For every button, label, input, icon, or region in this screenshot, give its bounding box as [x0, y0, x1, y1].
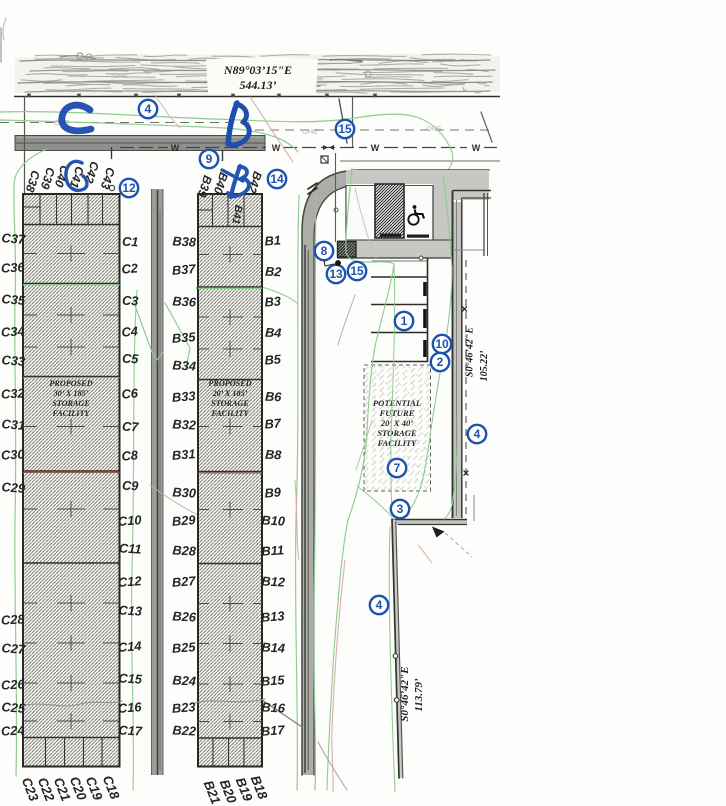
svg-text:C25: C25 [1, 699, 26, 716]
svg-text:C30: C30 [1, 446, 25, 462]
svg-text:C34: C34 [1, 323, 25, 339]
svg-text:POTENTIAL: POTENTIAL [373, 398, 421, 408]
svg-text:14: 14 [270, 172, 284, 186]
svg-text:C17: C17 [118, 722, 143, 738]
svg-text:B34: B34 [172, 357, 196, 373]
svg-text:C2: C2 [121, 260, 138, 276]
svg-text:13: 13 [329, 267, 343, 281]
svg-text:B33: B33 [171, 388, 195, 405]
svg-text:B2: B2 [265, 264, 282, 280]
svg-text:B26: B26 [172, 608, 197, 624]
svg-text:C26: C26 [1, 676, 26, 692]
svg-text:PROPOSED: PROPOSED [49, 379, 92, 388]
svg-text:C1: C1 [122, 234, 139, 250]
svg-text:C7: C7 [122, 419, 140, 435]
svg-text:C37: C37 [1, 230, 26, 247]
svg-text:C29: C29 [1, 479, 26, 496]
svg-text:PROPOSED: PROPOSED [208, 379, 251, 388]
svg-text:OHE: OHE [302, 129, 318, 136]
svg-text:20’ X 185’: 20’ X 185’ [212, 389, 248, 398]
svg-text:C36: C36 [1, 259, 26, 275]
svg-text:4: 4 [376, 598, 383, 612]
svg-text:FUTURE: FUTURE [379, 408, 415, 418]
svg-text:B24: B24 [172, 672, 196, 688]
svg-text:B37: B37 [171, 261, 196, 278]
svg-text:W: W [171, 143, 180, 153]
svg-text:C10: C10 [117, 512, 141, 529]
svg-text:B12: B12 [261, 573, 285, 589]
svg-text:S0°46’42"E: S0°46’42"E [399, 666, 411, 721]
svg-text:FACILITY: FACILITY [210, 409, 249, 418]
svg-text:B31: B31 [171, 446, 195, 463]
svg-text:C15: C15 [118, 670, 143, 686]
svg-text:×: × [461, 304, 468, 316]
svg-text:B27: B27 [171, 573, 196, 590]
svg-text:B8: B8 [265, 447, 283, 463]
svg-text:7: 7 [394, 461, 401, 475]
svg-text:30’ X 185’: 30’ X 185’ [53, 389, 89, 398]
svg-text:STORAGE: STORAGE [52, 399, 90, 408]
svg-text:FACILITY: FACILITY [51, 409, 90, 418]
svg-text:B30: B30 [172, 484, 196, 500]
svg-text:20’ X 40’: 20’ X 40’ [380, 418, 413, 428]
svg-text:C9: C9 [122, 478, 140, 494]
svg-text:12: 12 [122, 181, 136, 195]
svg-text:544.13’: 544.13’ [240, 78, 277, 92]
svg-text:B17: B17 [260, 722, 285, 739]
svg-text:B38: B38 [172, 233, 197, 249]
svg-text:1: 1 [401, 314, 408, 328]
svg-text:B3: B3 [264, 293, 281, 309]
svg-text:B1: B1 [264, 232, 281, 248]
svg-text:C31: C31 [1, 416, 25, 433]
svg-text:C32: C32 [1, 385, 25, 401]
svg-text:15: 15 [350, 264, 364, 278]
svg-text:B13: B13 [260, 608, 284, 625]
svg-text:OHE: OHE [112, 73, 128, 80]
svg-text:8: 8 [321, 244, 328, 258]
svg-text:B35: B35 [171, 329, 196, 346]
svg-text:B36: B36 [172, 293, 197, 309]
svg-text:B14: B14 [261, 639, 285, 655]
svg-text:C5: C5 [122, 351, 140, 367]
svg-text:C16: C16 [117, 699, 142, 716]
svg-text:15: 15 [338, 122, 352, 136]
svg-text:FACILITY: FACILITY [377, 438, 418, 448]
svg-text:C24: C24 [1, 722, 25, 738]
svg-text:B29: B29 [171, 512, 196, 529]
svg-text:B10: B10 [261, 512, 285, 528]
svg-text:W: W [371, 143, 380, 153]
svg-text:C3: C3 [122, 293, 139, 309]
svg-text:B25: B25 [171, 639, 196, 656]
svg-text:B15: B15 [260, 672, 285, 689]
svg-text:9: 9 [206, 152, 213, 166]
svg-text:STORAGE: STORAGE [377, 428, 417, 438]
svg-text:105.22’: 105.22’ [479, 351, 490, 382]
svg-text:4: 4 [474, 427, 481, 441]
svg-text:B6: B6 [265, 389, 283, 405]
svg-text:C11: C11 [119, 540, 142, 556]
svg-text:4: 4 [145, 102, 152, 116]
svg-text:STORAGE: STORAGE [211, 399, 249, 408]
svg-text:3: 3 [397, 502, 404, 516]
svg-text:2: 2 [437, 355, 444, 369]
svg-text:C4: C4 [121, 323, 138, 339]
svg-text:10: 10 [435, 337, 449, 351]
svg-text:B11: B11 [261, 542, 285, 559]
svg-text:C8: C8 [121, 447, 139, 463]
svg-text:B9: B9 [264, 484, 282, 500]
svg-text:C35: C35 [1, 291, 26, 308]
svg-text:C27: C27 [1, 640, 26, 657]
svg-text:C28: C28 [1, 611, 26, 627]
svg-text:B7: B7 [264, 415, 282, 431]
svg-text:B16: B16 [261, 699, 286, 715]
svg-text:113.79’: 113.79’ [413, 678, 425, 712]
svg-text:B23: B23 [171, 699, 195, 716]
svg-text:B28: B28 [172, 542, 197, 558]
svg-text:W: W [272, 143, 281, 153]
svg-text:C6: C6 [121, 385, 139, 401]
svg-text:B32: B32 [172, 416, 196, 432]
svg-text:B4: B4 [265, 325, 282, 341]
svg-text:C33: C33 [1, 352, 25, 369]
svg-text:C12: C12 [117, 573, 141, 590]
svg-text:C14: C14 [117, 638, 141, 655]
svg-text:N89°03’15"E: N89°03’15"E [223, 63, 292, 77]
svg-text:W: W [472, 143, 481, 153]
svg-text:C13: C13 [118, 602, 142, 618]
svg-text:S0°46’42"E: S0°46’42"E [465, 327, 476, 377]
svg-text:B22: B22 [172, 722, 196, 738]
svg-text:×: × [463, 468, 470, 480]
svg-text:B5: B5 [264, 351, 282, 367]
